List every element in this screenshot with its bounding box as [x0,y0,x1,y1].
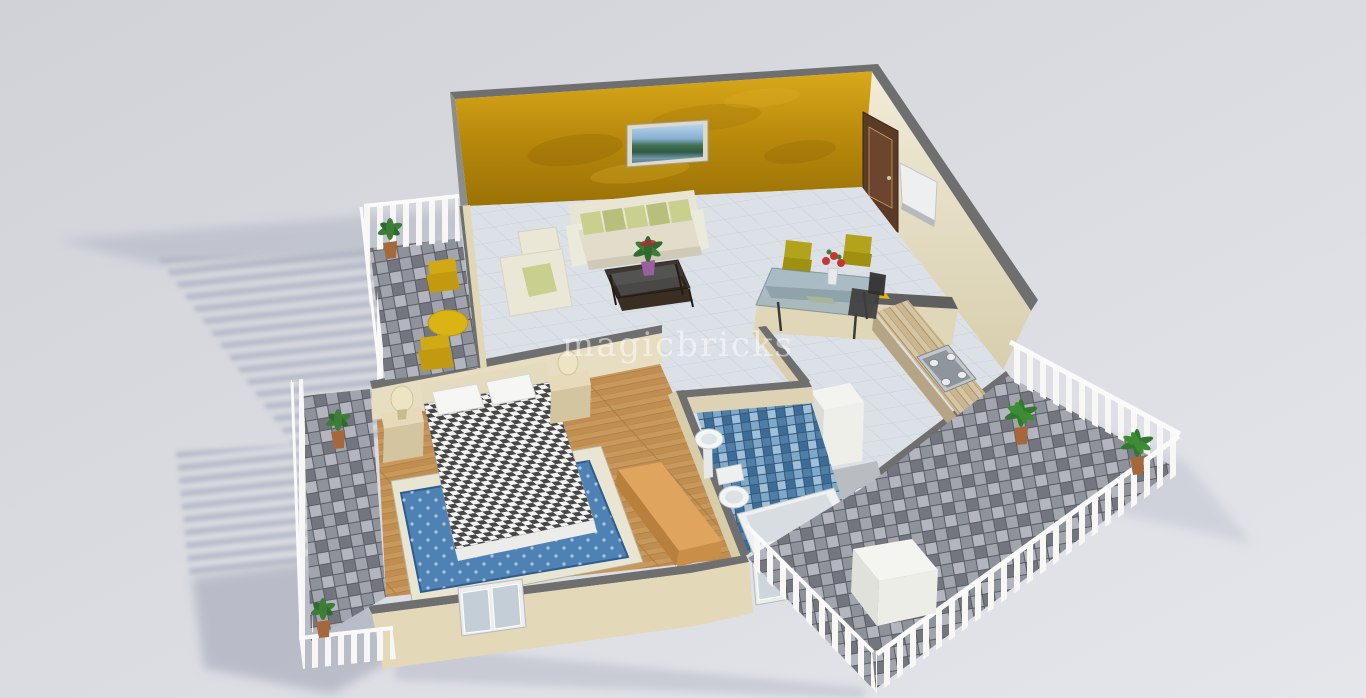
door-knob [887,176,891,180]
entrance-door-panel [869,127,892,208]
flower-vase [828,268,838,285]
potted-plant-leaf [319,598,327,620]
table-lamp [391,386,413,412]
sofa-cushion [668,199,692,223]
painting-landscape [632,124,703,163]
wash-basin-bowl [701,434,717,445]
potted-plant-leaf [386,218,394,240]
sliding-door-pane [462,589,491,633]
magicbricks-watermark: magicbricks [562,325,794,365]
floorplan-canvas: magicbricks [0,0,1366,698]
sofa-cushion [624,205,648,229]
railing-shadow-stripes-lower [176,444,312,580]
table-lamp-base [397,409,407,420]
sofa-cushion [580,211,604,235]
sliding-door-pane [492,584,521,629]
stove-burner [958,372,967,379]
flower-leaf [827,250,832,255]
balcony-table [428,310,468,336]
sofa-cushion [646,202,670,226]
balcony-chair-seat [418,347,454,371]
stove-burner [930,360,939,367]
wash-basin-pedestal [703,445,713,479]
toilet-seat [725,491,743,504]
red-flower [837,259,845,267]
dining-chair-dark-back [868,272,886,296]
potted-plant-leaf [334,409,342,431]
red-flower [822,257,830,265]
sofa-cushion [602,208,626,232]
flower-leaf [837,255,842,260]
floorplan-3d-render: magicbricks [0,0,1366,698]
stove-burner [947,354,956,361]
stove-burner [942,379,951,386]
nightstand-left [383,422,424,463]
